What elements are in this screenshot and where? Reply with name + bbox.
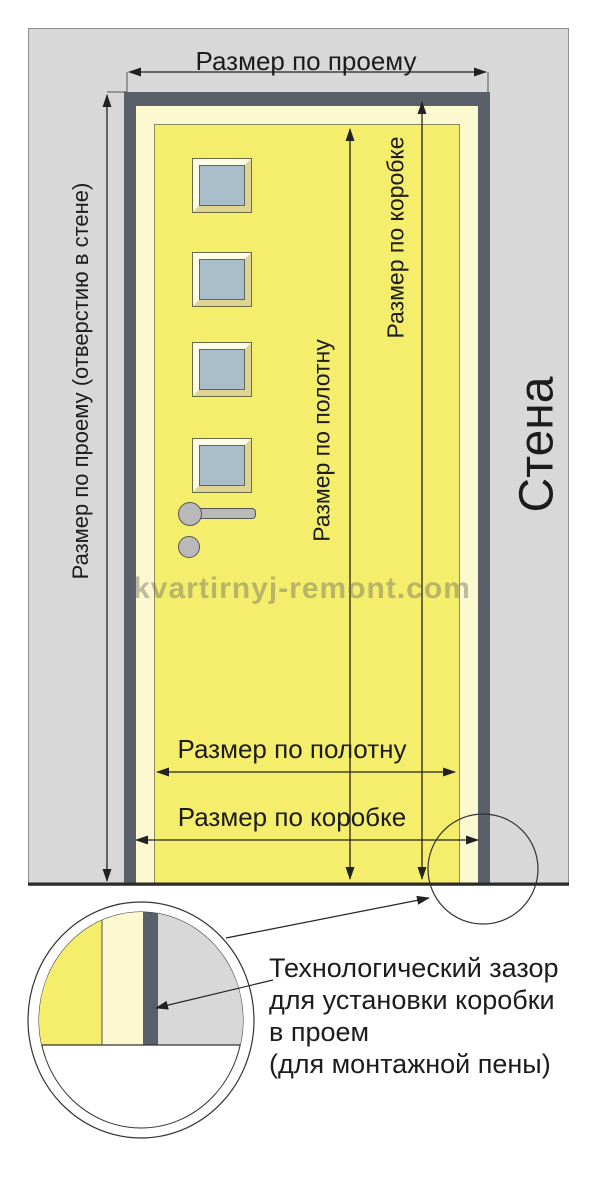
opening-height-label: Размер по проему (отверстию в стене) — [68, 161, 94, 601]
magnifier-outer-circle — [28, 902, 254, 1138]
callout-line: (для монтажной пены) — [269, 1048, 559, 1080]
leader-to-source-circle — [226, 898, 429, 938]
frame-width-label: Размер по коробке — [142, 802, 442, 833]
frame-height-label: Размер по коробке — [383, 108, 410, 368]
window-bevel — [193, 253, 251, 306]
wall-label: Стена — [510, 345, 565, 545]
window-bevel — [193, 439, 251, 492]
callout-line: Технологический зазор — [269, 952, 559, 984]
door-window-1 — [192, 158, 252, 213]
callout-arrow — [156, 980, 273, 1008]
magnifier-inner-circle — [39, 912, 243, 1128]
door-leaf — [154, 124, 460, 885]
lens-wall-stripe — [158, 900, 258, 1045]
window-glass — [199, 445, 245, 486]
callout-line: в проем — [269, 1016, 559, 1048]
window-glass — [199, 349, 245, 390]
lens-frame-stripe — [102, 900, 143, 1045]
keyhole-icon — [178, 536, 200, 558]
door-window-2 — [192, 252, 252, 307]
window-bevel — [193, 343, 251, 396]
window-bevel — [193, 159, 251, 212]
lens-leaf-stripe — [25, 900, 102, 1045]
callout-text: Технологический зазор для установки коро… — [269, 952, 559, 1080]
magnifier-content — [25, 900, 258, 1045]
window-glass — [199, 259, 245, 300]
watermark: kvartirnyj-remont.com — [100, 572, 504, 606]
door-window-4 — [192, 438, 252, 493]
callout-line: для установки коробки — [269, 984, 559, 1016]
leaf-height-label: Размер по полотну — [309, 311, 336, 571]
lens-gap-stripe — [143, 900, 158, 1045]
leaf-width-label: Размер по полотну — [142, 734, 442, 765]
door-handle-rose — [178, 502, 202, 526]
window-glass — [199, 165, 245, 206]
opening-width-label: Размер по проему — [146, 46, 466, 77]
door-window-3 — [192, 342, 252, 397]
door-measurement-diagram: Размер по проему Размер по проему (отвер… — [0, 0, 600, 1178]
